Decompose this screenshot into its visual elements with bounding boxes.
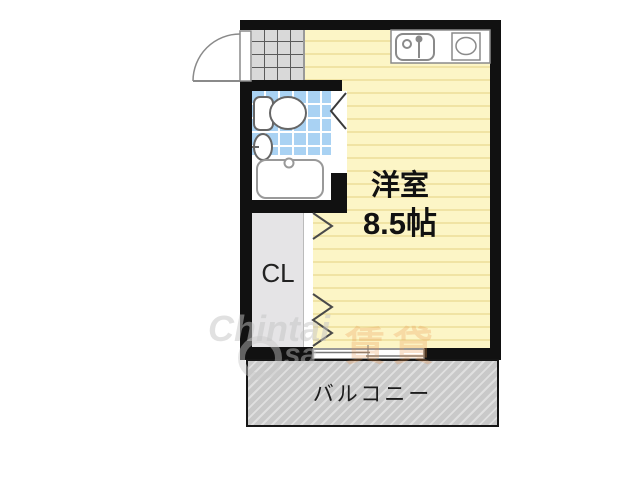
toilet-icon [254,97,306,130]
balcony-area: バルコニー [246,359,499,427]
main-room-size: 8.5帖 [328,204,472,244]
entrance-door-icon [193,31,251,81]
closet-label: CL [250,258,306,289]
balcony-label: バルコニー [313,378,433,408]
washbasin-icon [252,134,272,160]
floorplan: バルコニー 洋室 8.5帖 CL Chintai sa 賃貸 [0,0,640,480]
bathtub-icon [257,159,323,199]
kitchen-counter-icon [391,30,490,63]
bathroom-door-icon [331,93,346,129]
main-room-label: 洋室 8.5帖 [328,168,472,244]
main-room-name: 洋室 [328,168,472,204]
